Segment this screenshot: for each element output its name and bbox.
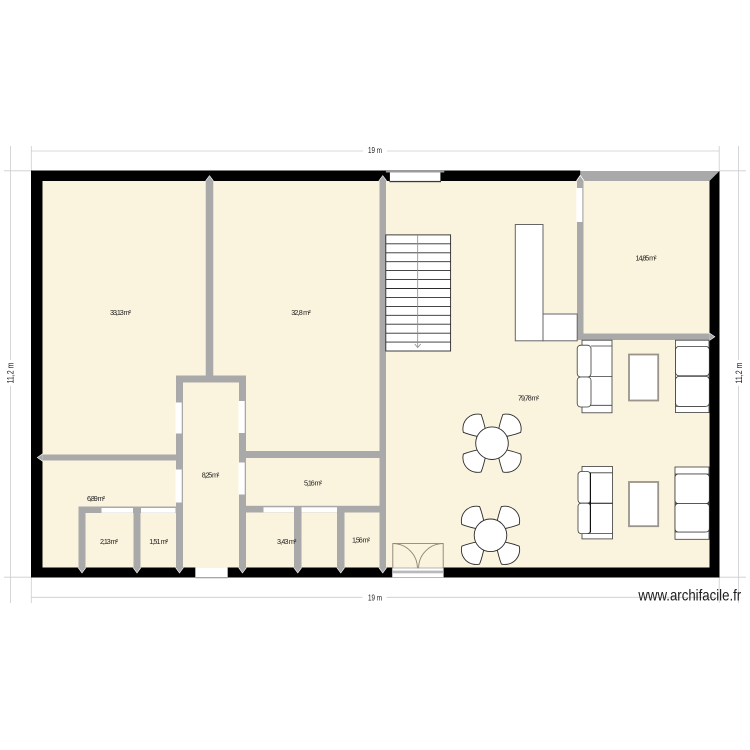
svg-text:1,56 m²: 1,56 m² — [352, 536, 371, 545]
svg-text:19 m: 19 m — [368, 146, 382, 155]
svg-text:6,89 m²: 6,89 m² — [87, 494, 106, 503]
svg-text:11,2 m: 11,2 m — [5, 363, 15, 384]
svg-text:32,8 m²: 32,8 m² — [291, 308, 311, 317]
svg-text:14,85 m²: 14,85 m² — [636, 254, 658, 263]
svg-text:33,13 m²: 33,13 m² — [110, 308, 132, 317]
svg-text:79,78 m²: 79,78 m² — [518, 393, 540, 402]
svg-text:5,16 m²: 5,16 m² — [304, 479, 323, 488]
svg-text:3,43 m²: 3,43 m² — [277, 537, 297, 546]
svg-text:19 m: 19 m — [368, 594, 382, 603]
svg-text:8,25 m²: 8,25 m² — [202, 471, 220, 480]
svg-text:2,13 m²: 2,13 m² — [100, 537, 119, 546]
svg-text:www.archifacile.fr: www.archifacile.fr — [638, 587, 742, 604]
svg-text:1,51 m²: 1,51 m² — [149, 537, 169, 546]
svg-text:11,2 m: 11,2 m — [734, 363, 744, 384]
